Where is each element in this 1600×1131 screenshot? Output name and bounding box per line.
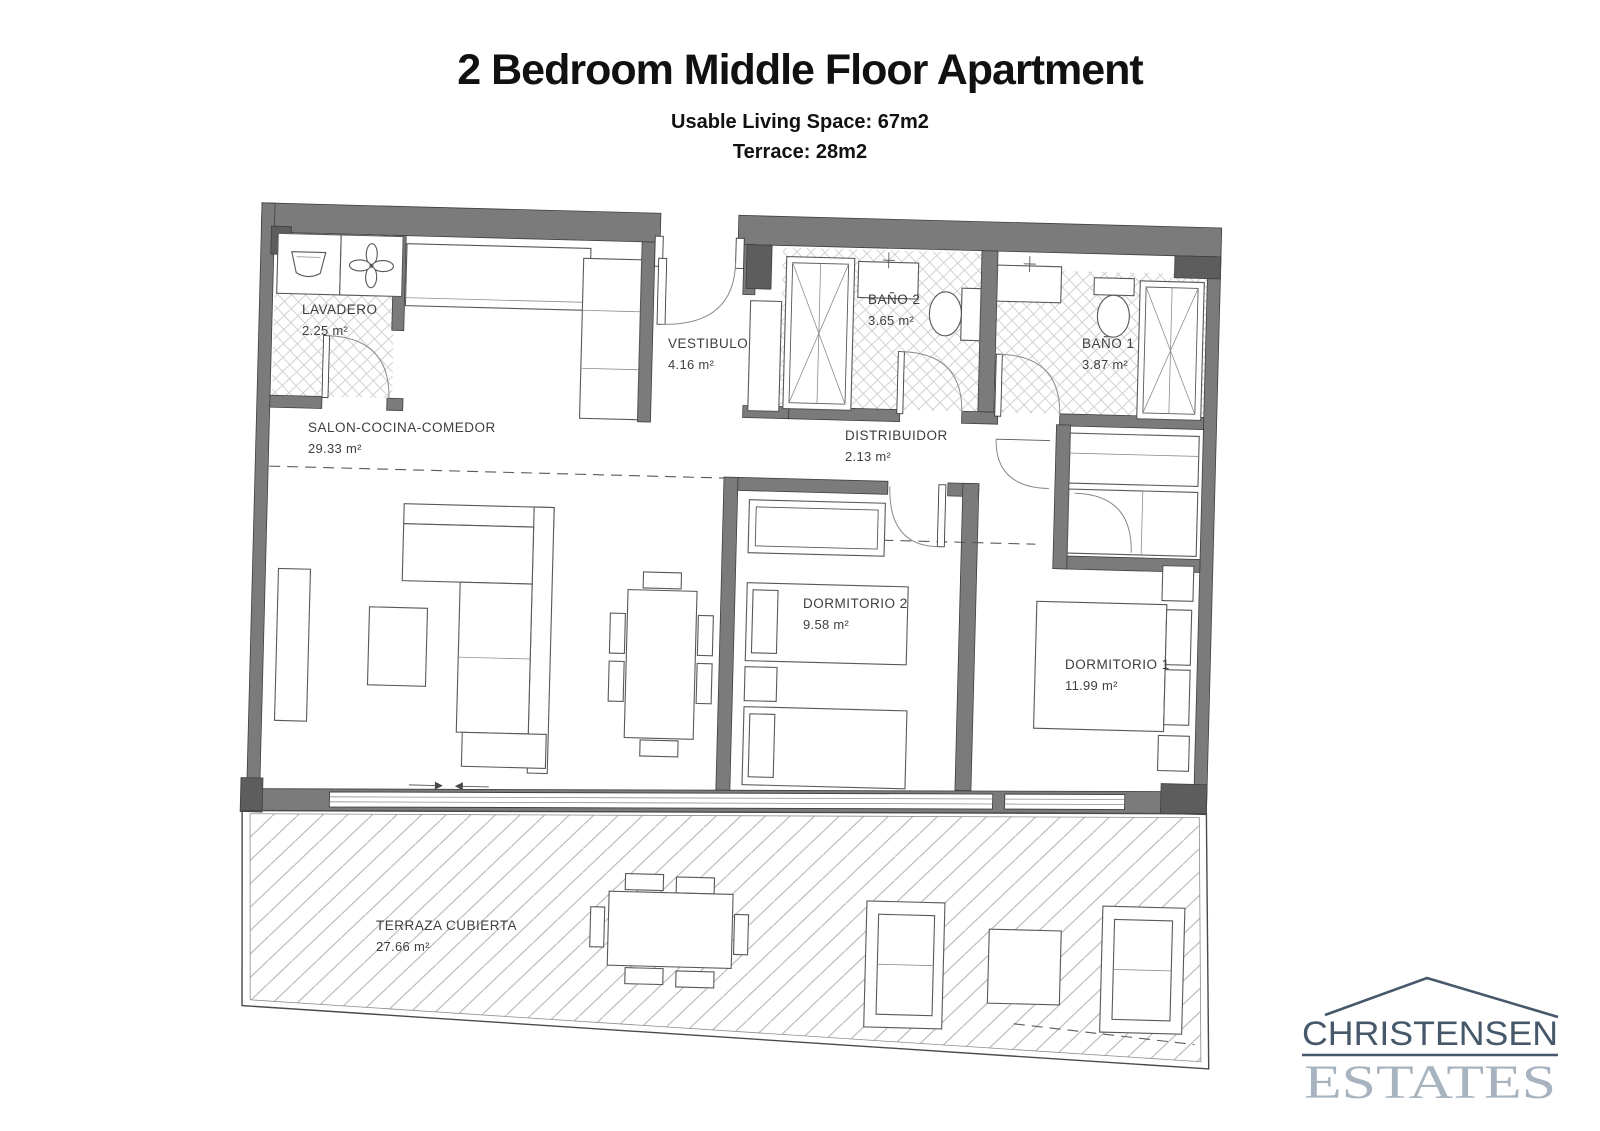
roof-icon [1325, 978, 1558, 1017]
bedroom2-nightstand [744, 667, 777, 702]
bedroom1-closet [1069, 433, 1199, 486]
terrace-side-table [987, 929, 1061, 1005]
room-label-bano1: BAÑO 1 3.87 m² [1082, 333, 1135, 375]
bathroom2-shower [783, 257, 855, 411]
bedroom1-nightstand-a [1162, 566, 1194, 602]
coffee-table [367, 607, 427, 686]
laundry-fixtures [277, 233, 404, 296]
kitchen-tall-unit [580, 258, 642, 419]
brand-name-top: CHRISTENSEN [1302, 1015, 1558, 1053]
hall-closet [748, 301, 782, 412]
terrace-armchair-right [1100, 906, 1185, 1034]
bedroom1-wardrobe [1067, 489, 1198, 556]
bedroom1-nightstand-b [1158, 735, 1190, 771]
kitchen-counter [405, 244, 591, 311]
room-label-bano2: BAÑO 2 3.65 m² [868, 289, 921, 331]
bedroom2-bed-b [742, 707, 907, 789]
bathroom1-shower [1137, 281, 1205, 421]
sideboard [275, 568, 311, 721]
room-label-dormitorio1: DORMITORIO 1 11.99 m² [1065, 654, 1170, 696]
bedroom-window [1004, 791, 1124, 812]
washbasin-icon [291, 252, 326, 277]
room-label-lavadero: LAVADERO 2.25 m² [302, 299, 378, 341]
room-label-terraza: TERRAZA CUBIERTA 27.66 m² [376, 915, 517, 957]
room-label-dormitorio2: DORMITORIO 2 9.58 m² [803, 593, 908, 635]
room-label-vestibulo: VESTIBULO 4.16 m² [668, 333, 748, 375]
brand-name-bottom: ESTATES [1304, 1056, 1556, 1109]
brand-logo: CHRISTENSEN ESTATES [1262, 955, 1582, 1125]
room-label-salon: SALON-COCINA-COMEDOR 29.33 m² [308, 417, 496, 459]
room-label-distribuidor: DISTRIBUIDOR 2.13 m² [845, 425, 948, 467]
floor-plan-page: 2 Bedroom Middle Floor Apartment Usable … [0, 0, 1600, 1131]
bedroom2-wardrobe [748, 500, 885, 557]
terrace-armchair-left [864, 901, 945, 1029]
